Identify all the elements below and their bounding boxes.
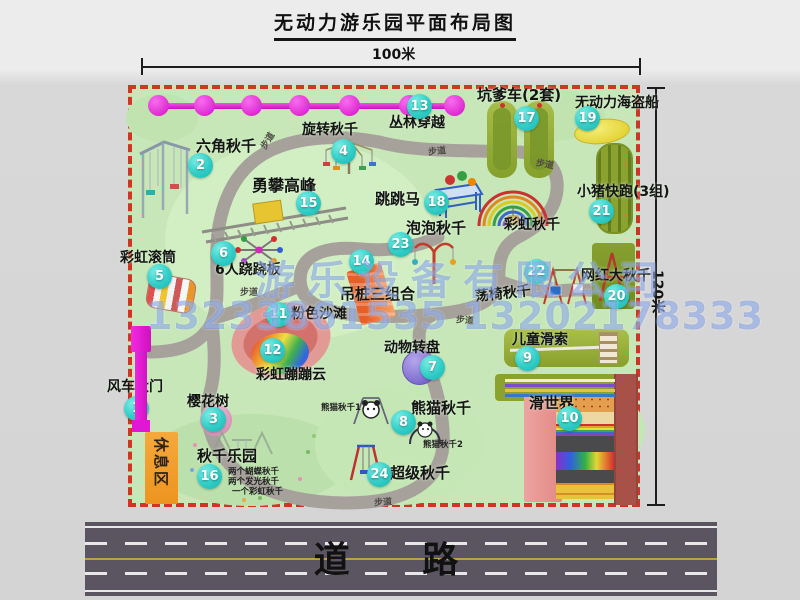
badge-6: 6 <box>211 241 236 266</box>
badge-18: 18 <box>424 190 449 215</box>
path-label: 步道 <box>240 285 258 298</box>
top-dimension-label: 100米 <box>372 44 415 64</box>
slide-world-stripe <box>505 384 615 387</box>
badge-17: 17 <box>514 106 539 131</box>
right-dimension-tick-top <box>647 87 665 89</box>
badge-10: 10 <box>557 406 582 431</box>
slide-world-maroon-slab <box>614 374 638 505</box>
jungle-crossing-node <box>444 95 465 116</box>
label-hexagon-swing: 六角秋千 <box>196 138 256 155</box>
label-panda-swing-1: 熊猫秋千1 <box>321 404 361 413</box>
windmill-gate-post <box>135 351 147 423</box>
badge-21: 21 <box>589 199 614 224</box>
label-rotating-swing: 旋转秋千 <box>302 123 358 138</box>
badge-11: 11 <box>266 302 291 327</box>
jungle-crossing-node <box>289 95 310 116</box>
label-swing-park: 秋千乐园 <box>197 448 257 465</box>
top-dimension-tick-right <box>639 58 641 75</box>
badge-12: 12 <box>260 338 285 363</box>
jungle-crossing-node <box>241 95 262 116</box>
label-rainbow-cloud: 彩虹蹦蹦云 <box>256 368 326 383</box>
badge-19: 19 <box>575 106 600 131</box>
badge-2: 2 <box>188 153 213 178</box>
path-label: 步道 <box>427 143 446 158</box>
label-rainbow-roller: 彩虹滚筒 <box>120 251 176 266</box>
right-dimension-tick-bottom <box>647 504 665 506</box>
path-label: 步道 <box>374 494 393 508</box>
badge-9: 9 <box>515 346 540 371</box>
flower-speck <box>298 477 302 481</box>
badge-24: 24 <box>367 462 392 487</box>
flower-speck <box>312 434 316 438</box>
badge-20: 20 <box>604 284 629 309</box>
path-label: 步道 <box>456 312 475 326</box>
label-bubble-swing: 泡泡秋千 <box>406 220 466 237</box>
slide-world-band-rainbow <box>556 452 614 470</box>
badge-8: 8 <box>391 410 416 435</box>
label-children-zipline: 儿童滑索 <box>512 333 568 348</box>
road-edge-line <box>85 590 717 592</box>
badge-15: 15 <box>296 191 321 216</box>
label-swing-park-detail-3: 一个彩虹秋千 <box>232 488 283 497</box>
label-jumping-horse: 跳跳马 <box>375 191 420 208</box>
label-panda-swing: 熊猫秋千 <box>411 400 471 417</box>
road-label: 道 路 <box>314 531 489 583</box>
slide-world-stripe <box>505 389 615 392</box>
top-dimension-tick-left <box>141 58 143 75</box>
hexagon-swing-icon <box>134 122 196 234</box>
label-hanging-pile: 吊桩三组合 <box>340 286 415 303</box>
label-big-swing: 网红大秋千 <box>581 269 651 284</box>
slide-world-stripe <box>505 379 615 382</box>
badge-14: 14 <box>349 249 374 274</box>
bubble-swing-icon <box>408 236 460 288</box>
slide-world-band-dark2 <box>556 470 614 483</box>
label-rainbow-swing: 彩虹秋千 <box>504 218 560 233</box>
pit-car-inner <box>493 108 511 170</box>
label-piggy-run: 小猪快跑(3组) <box>577 185 670 200</box>
road: 道 路 <box>85 522 717 596</box>
label-swing-park-detail-2: 两个发光秋千 <box>228 478 279 487</box>
flower-speck <box>306 450 310 454</box>
badge-7: 7 <box>420 355 445 380</box>
flower-speck <box>190 468 194 472</box>
badge-13: 13 <box>407 94 432 119</box>
badge-5: 5 <box>147 264 172 289</box>
road-edge-line <box>85 526 717 528</box>
park-layout-map: 无动力游乐园平面布局图 100米 120米 <box>0 0 800 600</box>
badge-22: 22 <box>524 259 549 284</box>
jungle-crossing-node <box>194 95 215 116</box>
jungle-crossing-node <box>148 95 169 116</box>
label-swing-park-detail-1: 两个蝴蝶秋千 <box>228 468 279 477</box>
rest-area-label: 休息区 <box>151 437 172 488</box>
windmill-gate-icon <box>131 326 151 352</box>
label-panda-swing-2: 熊猫秋千2 <box>423 441 463 450</box>
page-title: 无动力游乐园平面布局图 <box>274 8 516 41</box>
badge-4: 4 <box>331 139 356 164</box>
windmill-gate-base <box>132 420 150 432</box>
badge-16: 16 <box>197 464 222 489</box>
badge-23: 23 <box>388 232 413 257</box>
slide-world-band-dark1 <box>556 436 614 452</box>
label-pink-beach: 粉色沙滩 <box>291 307 347 322</box>
label-super-swing: 超级秋千 <box>390 465 450 482</box>
label-pit-car: 坑爹车(2套) <box>477 87 561 104</box>
jungle-crossing-node <box>339 95 360 116</box>
rest-area: 休息区 <box>145 432 178 504</box>
top-dimension-line <box>142 66 640 68</box>
slide-world-band-wavy <box>556 483 614 499</box>
right-dimension-label: 120米 <box>648 270 668 313</box>
zipline-ladder-icon <box>599 332 618 364</box>
badge-3: 3 <box>201 407 226 432</box>
flower-speck <box>242 498 246 502</box>
